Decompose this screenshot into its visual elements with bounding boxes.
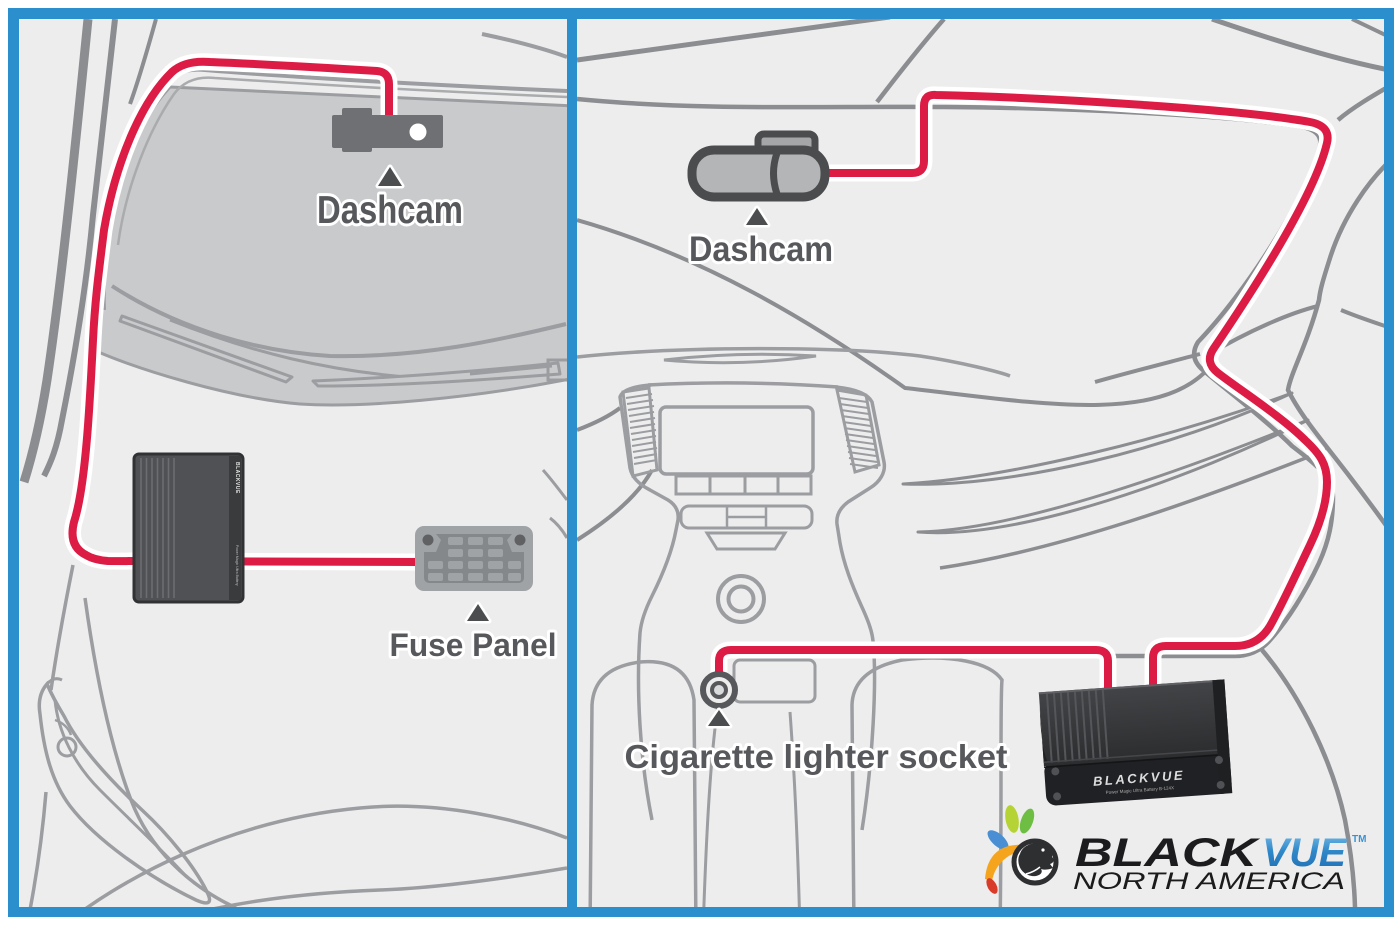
svg-text:TM: TM xyxy=(1352,834,1366,845)
svg-text:Dashcam: Dashcam xyxy=(317,189,463,232)
svg-text:BLACKVUE: BLACKVUE xyxy=(234,462,240,494)
svg-text:Fuse Panel: Fuse Panel xyxy=(390,627,557,663)
svg-text:NORTH AMERICA: NORTH AMERICA xyxy=(1073,868,1345,895)
svg-text:Dashcam: Dashcam xyxy=(689,230,833,269)
svg-text:Power Magic Ultra Battery: Power Magic Ultra Battery xyxy=(235,545,239,586)
svg-text:Cigarette lighter socket: Cigarette lighter socket xyxy=(625,739,1008,776)
